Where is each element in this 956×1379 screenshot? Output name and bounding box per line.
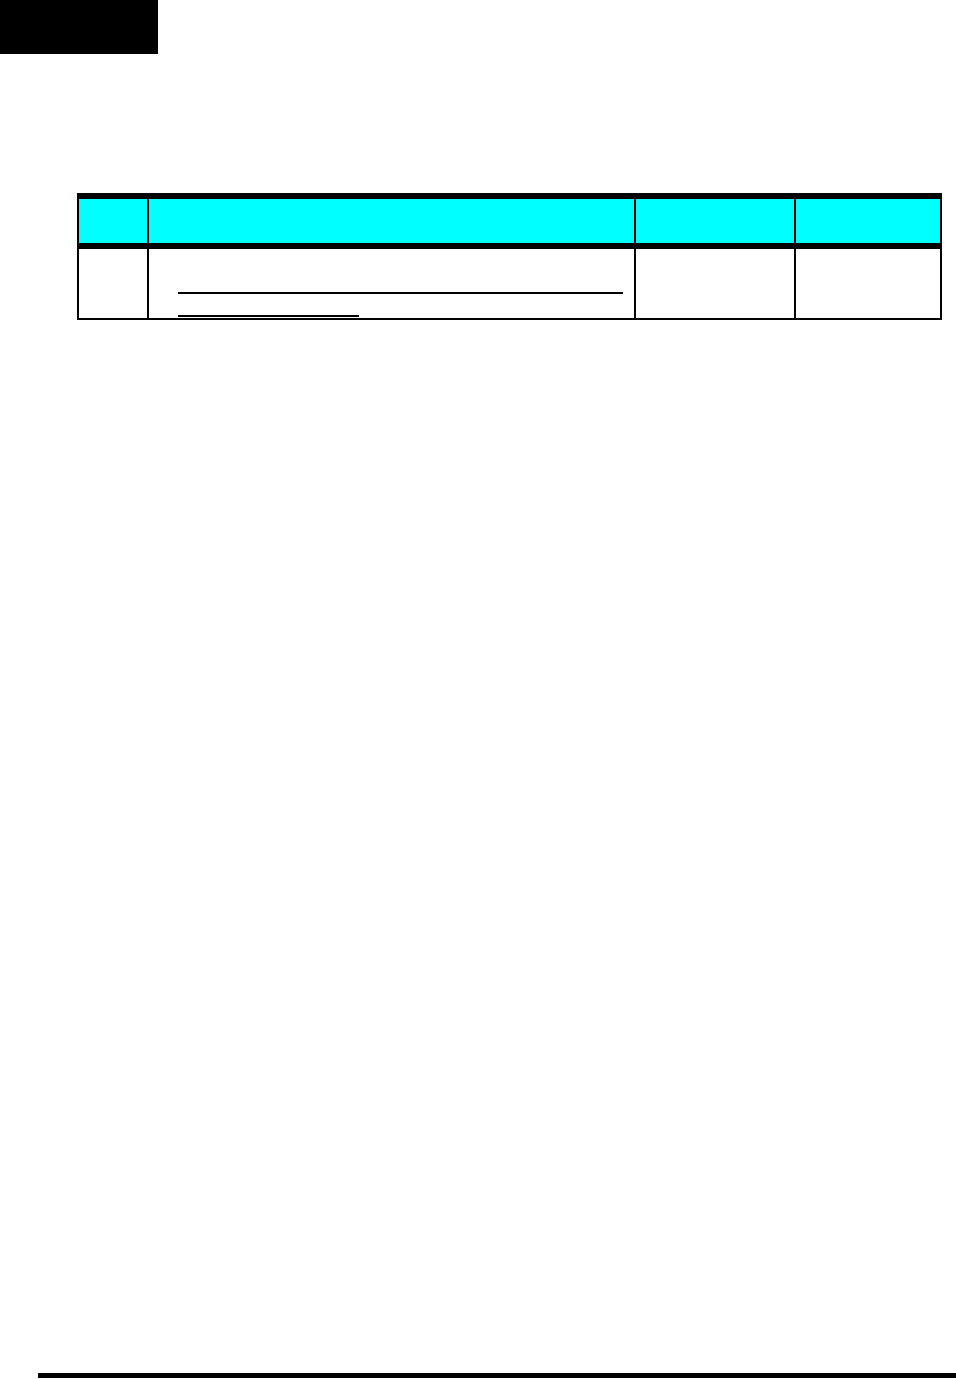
table-header-cell-1 [78,196,148,246]
document-page [0,0,956,1379]
table-header-cell-4 [795,196,941,246]
footer-horizontal-rule [38,1373,956,1378]
table-cell-4 [795,246,941,319]
table-row [78,246,941,319]
table-cell-2 [148,246,635,319]
table-cell-1 [78,246,148,319]
table-body [78,246,941,319]
table-header [78,196,941,246]
header-black-block [0,0,158,54]
form-table [77,193,942,320]
blank-underline-short [178,315,359,317]
blank-underline-long [178,292,623,294]
table-header-row [78,196,941,246]
table-cell-3 [635,246,795,319]
table-header-cell-2 [148,196,635,246]
table-header-cell-3 [635,196,795,246]
table-cell-2-content [149,249,634,318]
